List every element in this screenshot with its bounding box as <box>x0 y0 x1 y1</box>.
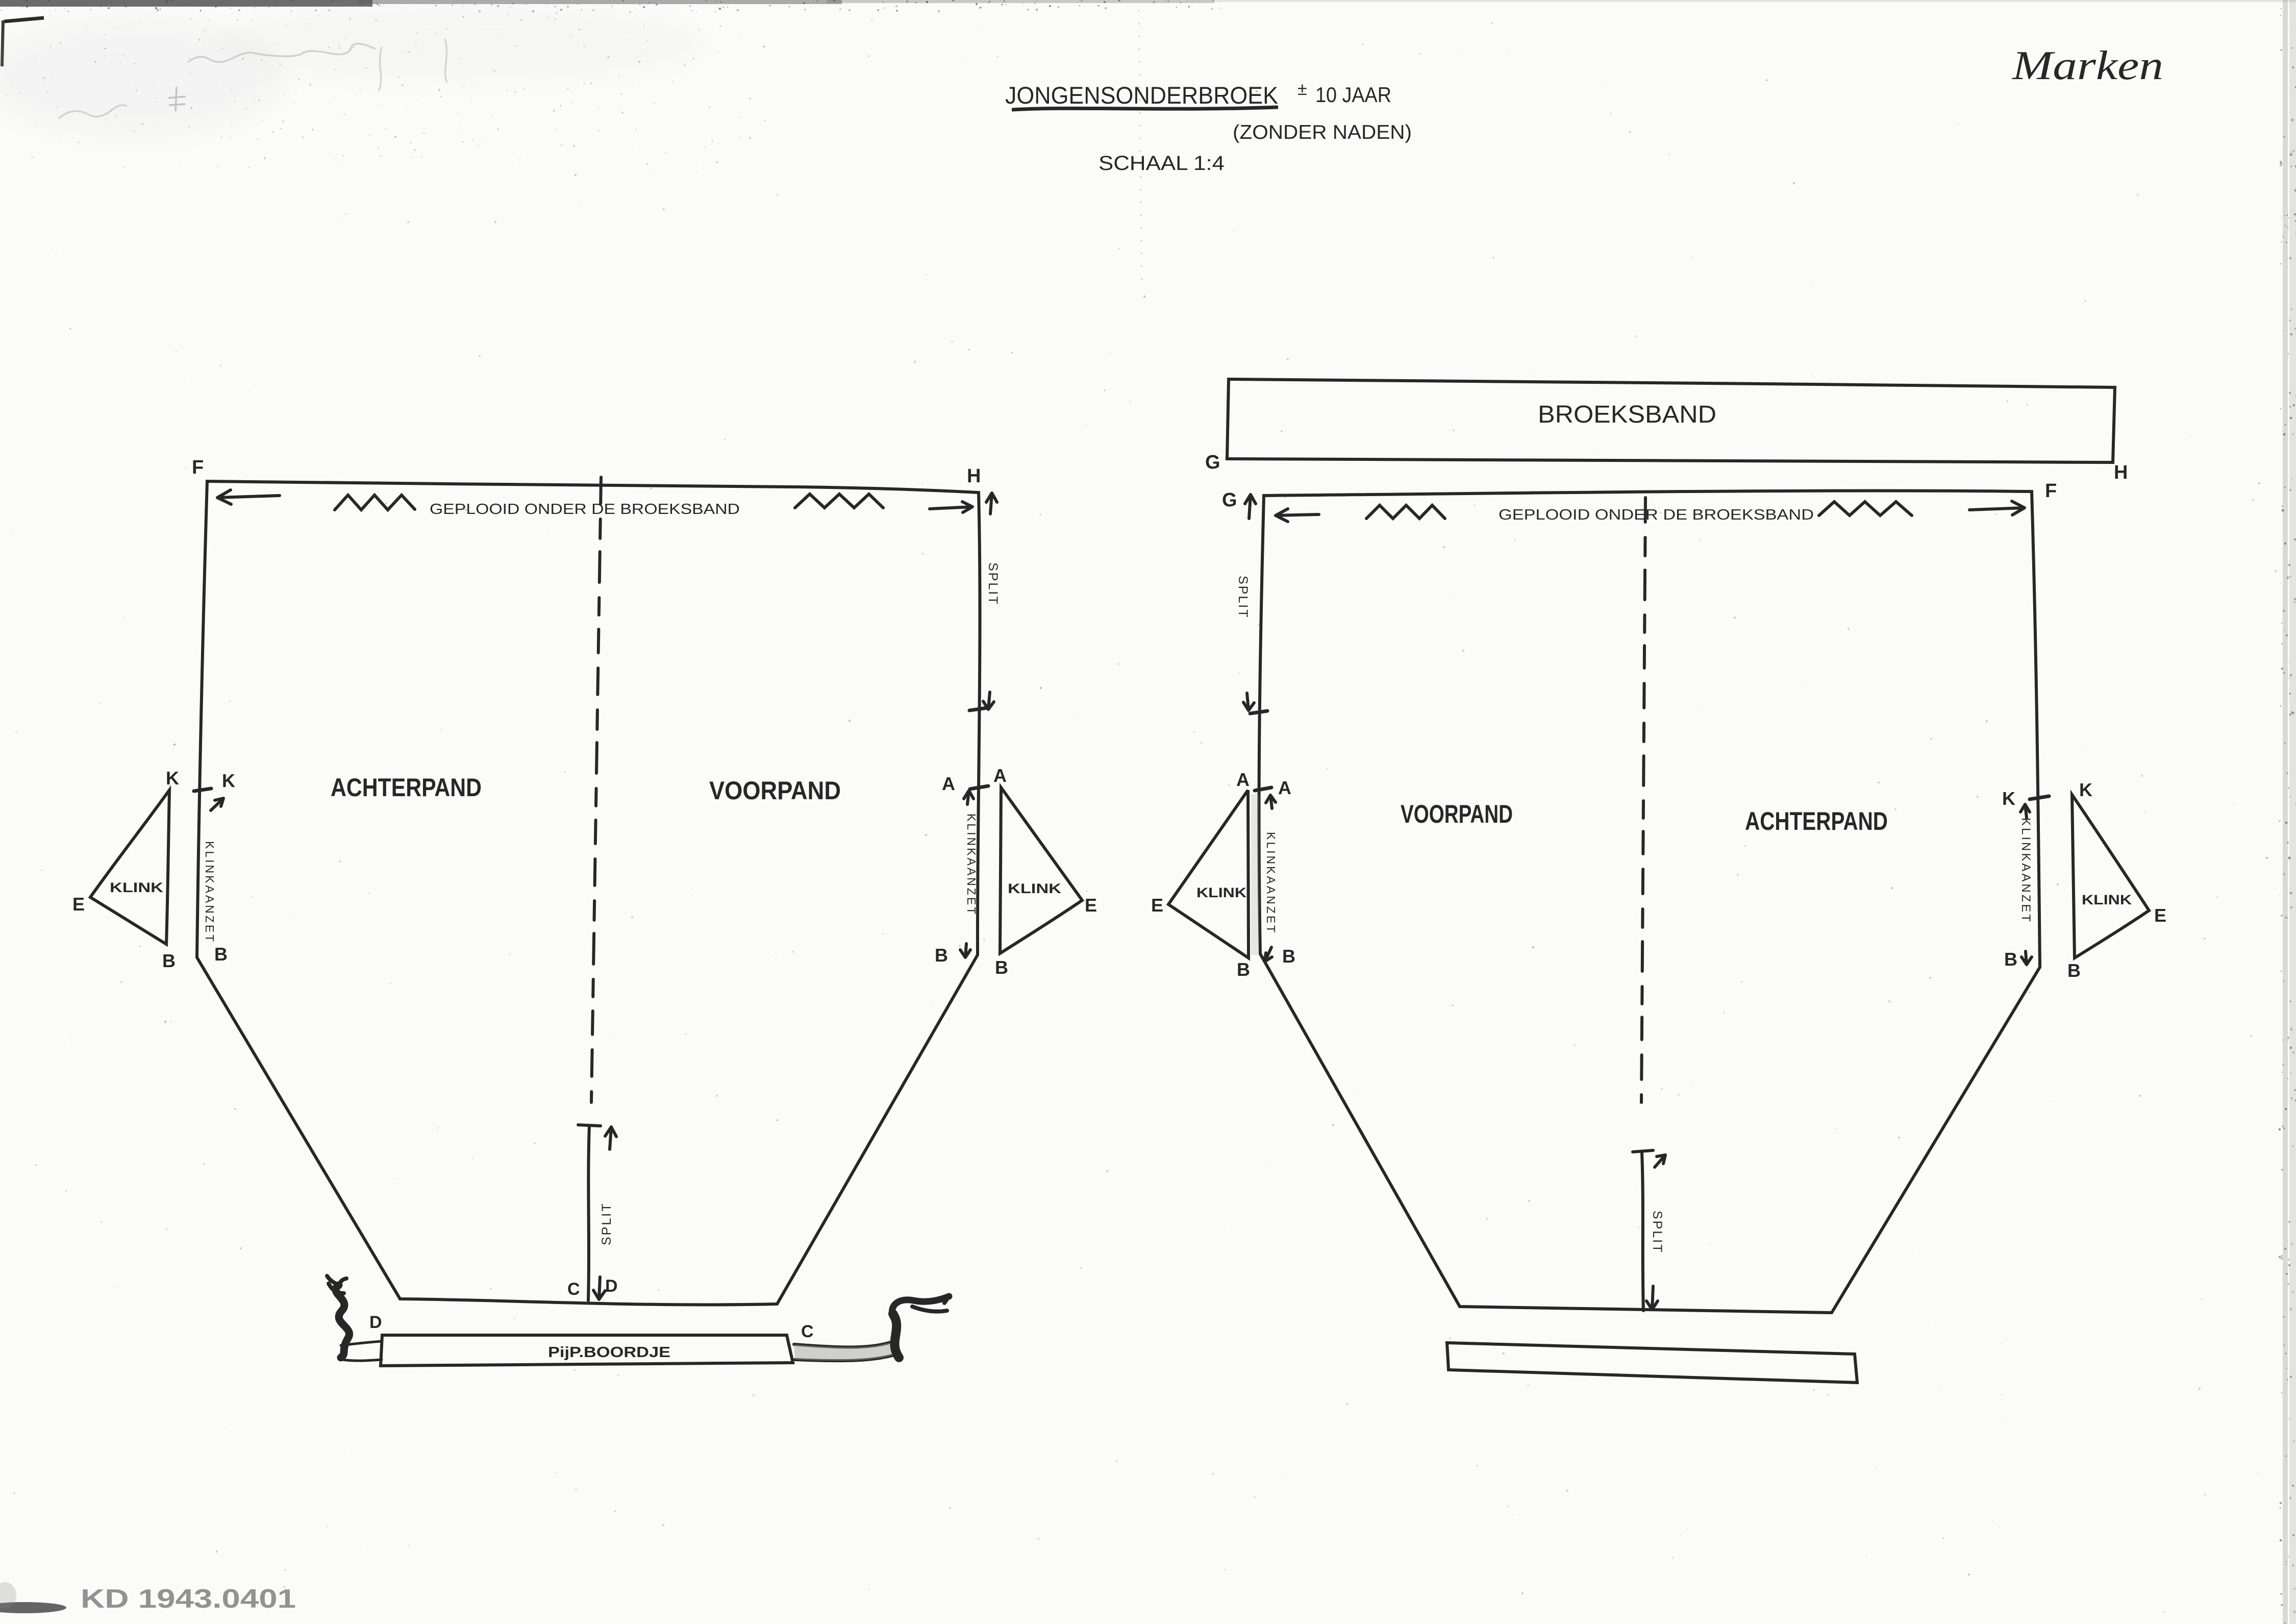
svg-text:B: B <box>935 945 948 966</box>
svg-text:Marken: Marken <box>2012 43 2163 88</box>
svg-text:B: B <box>1282 946 1295 967</box>
svg-text:G: G <box>1222 489 1237 511</box>
svg-text:KLINK: KLINK <box>110 880 164 895</box>
svg-text:F: F <box>192 457 204 478</box>
svg-text:D: D <box>369 1313 382 1332</box>
svg-text:VOORPAND: VOORPAND <box>1401 800 1513 828</box>
svg-text:H: H <box>2114 462 2128 483</box>
svg-text:E: E <box>72 894 85 915</box>
svg-text:K: K <box>222 770 235 791</box>
svg-text:B: B <box>1237 959 1250 980</box>
svg-text:C: C <box>801 1322 814 1341</box>
svg-text:A: A <box>1236 769 1250 790</box>
svg-text:F: F <box>2045 480 2057 502</box>
svg-text:JONGENSONDERBROEK: JONGENSONDERBROEK <box>1005 82 1278 109</box>
svg-text:±: ± <box>1297 80 1307 99</box>
svg-text:ACHTERPAND: ACHTERPAND <box>1745 807 1888 835</box>
svg-text:BROEKSBAND: BROEKSBAND <box>1538 401 1716 428</box>
svg-text:D: D <box>605 1276 618 1296</box>
svg-text:SPLIT: SPLIT <box>1236 576 1250 619</box>
svg-text:SPLIT: SPLIT <box>600 1202 614 1245</box>
svg-text:K: K <box>2002 788 2015 809</box>
svg-text:G: G <box>1205 452 1220 473</box>
svg-text:B: B <box>2004 949 2017 970</box>
svg-text:E: E <box>1085 895 1097 916</box>
svg-text:ACHTERPAND: ACHTERPAND <box>331 773 482 802</box>
svg-text:VOORPAND: VOORPAND <box>709 776 841 805</box>
svg-text:E: E <box>1151 895 1163 916</box>
svg-text:KD 1943.0401: KD 1943.0401 <box>81 1584 296 1614</box>
svg-text:B: B <box>214 944 228 965</box>
svg-text:K: K <box>166 768 179 789</box>
svg-text:C: C <box>567 1279 580 1299</box>
svg-text:SPLIT: SPLIT <box>986 562 1000 605</box>
svg-text:(ZONDER NADEN): (ZONDER NADEN) <box>1233 121 1412 143</box>
svg-text:GEPLOOID ONDER DE BROEKSBAND: GEPLOOID ONDER DE BROEKSBAND <box>430 501 740 518</box>
svg-text:B: B <box>995 957 1008 978</box>
svg-text:A: A <box>1278 777 1291 798</box>
svg-text:PijP.BOORDJE: PijP.BOORDJE <box>548 1344 670 1361</box>
svg-text:KLINK: KLINK <box>1008 881 1062 896</box>
svg-text:K: K <box>2079 779 2092 800</box>
svg-text:B: B <box>162 950 176 971</box>
svg-text:KLINKAANZET: KLINKAANZET <box>1264 832 1278 934</box>
svg-text:SPLIT: SPLIT <box>1650 1211 1664 1253</box>
svg-text:KLINKAANZET: KLINKAANZET <box>965 814 978 916</box>
svg-text:KLINK: KLINK <box>1196 885 1247 900</box>
svg-text:H: H <box>967 465 981 487</box>
svg-text:GEPLOOID ONDER DE BROEKSBAND: GEPLOOID ONDER DE BROEKSBAND <box>1499 507 1814 523</box>
svg-text:SCHAAL 1:4: SCHAAL 1:4 <box>1099 152 1225 175</box>
svg-text:A: A <box>993 765 1007 786</box>
svg-text:A: A <box>942 773 955 794</box>
svg-text:B: B <box>2067 960 2081 981</box>
svg-text:KLINK: KLINK <box>2082 892 2132 907</box>
svg-text:E: E <box>2154 905 2166 926</box>
svg-text:10 JAAR: 10 JAAR <box>1315 83 1391 107</box>
svg-text:KLINKAANZET: KLINKAANZET <box>203 841 216 944</box>
svg-text:KLINKAANZET: KLINKAANZET <box>2019 818 2033 924</box>
